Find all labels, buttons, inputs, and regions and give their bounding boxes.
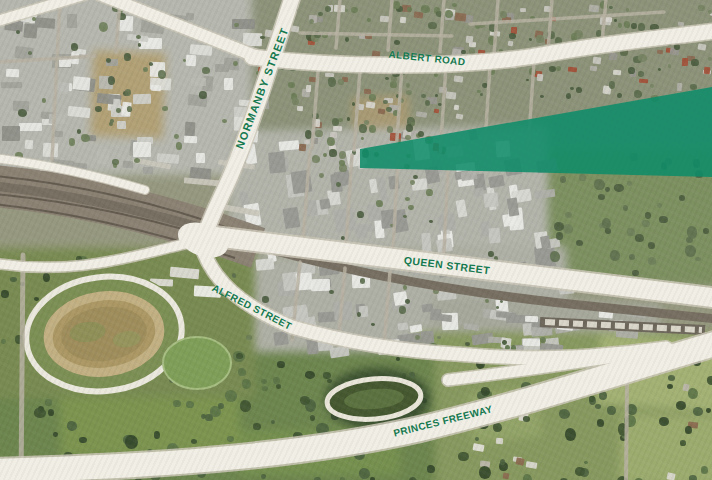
highlighted-area-wedge bbox=[360, 87, 712, 177]
aerial-map: ALBERT ROAD NORMANBY STREET QUEEN STREET… bbox=[0, 0, 712, 480]
highlight-overlay bbox=[0, 0, 712, 480]
